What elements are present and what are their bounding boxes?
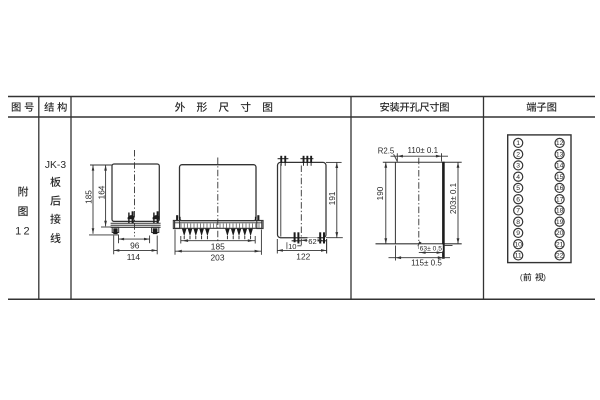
svg-text:185: 185 bbox=[211, 242, 225, 252]
svg-text:191: 191 bbox=[328, 191, 337, 205]
svg-text:18: 18 bbox=[556, 208, 564, 215]
svg-text:5: 5 bbox=[516, 185, 520, 192]
svg-text:122: 122 bbox=[296, 252, 310, 262]
svg-text:14: 14 bbox=[556, 163, 564, 170]
svg-text:203: 203 bbox=[211, 252, 225, 262]
svg-text:17: 17 bbox=[556, 196, 564, 203]
svg-text:9: 9 bbox=[516, 230, 520, 237]
svg-text:62: 62 bbox=[308, 237, 316, 246]
svg-text:185: 185 bbox=[85, 190, 94, 204]
svg-text:96: 96 bbox=[130, 241, 140, 251]
svg-text:12: 12 bbox=[556, 140, 564, 147]
svg-text:114: 114 bbox=[127, 252, 141, 262]
svg-text:21: 21 bbox=[556, 241, 564, 248]
svg-text:190: 190 bbox=[376, 186, 385, 200]
svg-text:13: 13 bbox=[556, 151, 564, 158]
svg-text:6: 6 bbox=[516, 196, 520, 203]
svg-text:7: 7 bbox=[516, 208, 520, 215]
svg-text:R2.5: R2.5 bbox=[378, 146, 395, 155]
svg-text:115± 0.5: 115± 0.5 bbox=[411, 259, 442, 268]
svg-text:164: 164 bbox=[97, 185, 106, 199]
svg-text:19: 19 bbox=[556, 219, 564, 226]
svg-text:63± 0.5: 63± 0.5 bbox=[420, 245, 443, 252]
svg-text:15: 15 bbox=[556, 174, 564, 181]
svg-text:3: 3 bbox=[516, 163, 520, 170]
svg-text:8: 8 bbox=[516, 219, 520, 226]
svg-text:2: 2 bbox=[516, 151, 520, 158]
svg-text:110± 0.1: 110± 0.1 bbox=[408, 146, 439, 155]
svg-text:): ) bbox=[543, 272, 546, 282]
svg-text:JK-3: JK-3 bbox=[45, 160, 66, 171]
svg-text:10: 10 bbox=[288, 242, 296, 251]
svg-text:4: 4 bbox=[516, 174, 520, 181]
svg-text:(: ( bbox=[520, 272, 523, 282]
svg-text:10: 10 bbox=[514, 241, 522, 248]
svg-text:22: 22 bbox=[556, 253, 564, 260]
svg-text:12: 12 bbox=[15, 226, 32, 238]
svg-text:11: 11 bbox=[515, 253, 522, 260]
svg-text:16: 16 bbox=[556, 185, 564, 192]
svg-text:203± 0.1: 203± 0.1 bbox=[449, 182, 458, 214]
svg-text:20: 20 bbox=[556, 230, 564, 237]
svg-text:1: 1 bbox=[516, 140, 520, 147]
